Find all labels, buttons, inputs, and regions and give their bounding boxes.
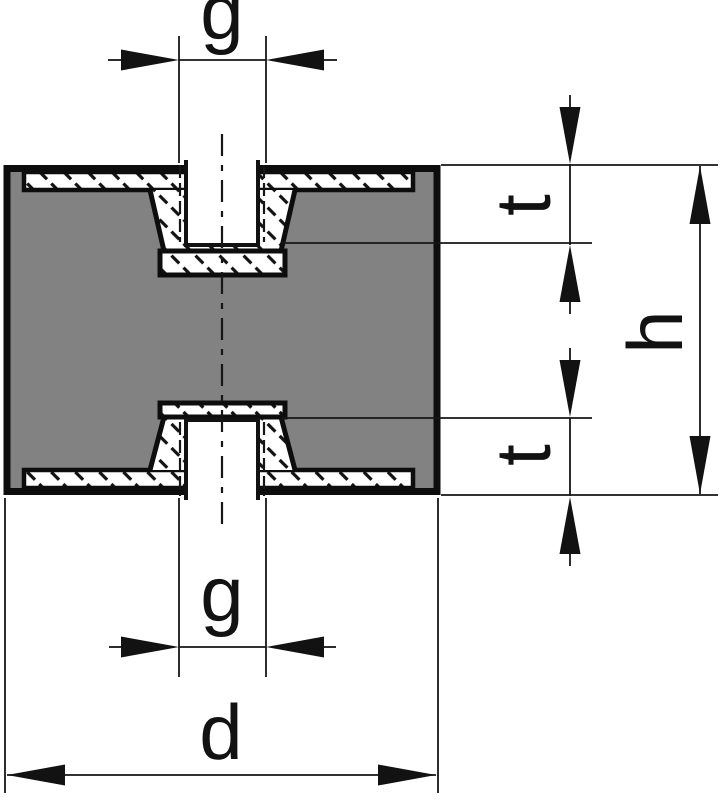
arrowhead <box>121 637 179 658</box>
dim-label-g-top: g <box>200 0 243 56</box>
technical-drawing-page: g t h t g d <box>0 0 722 800</box>
arrowhead <box>266 50 324 71</box>
dim-label-h: h <box>611 310 699 353</box>
dim-label-d: d <box>199 688 242 776</box>
buffer-section-drawing: g t h t g d <box>0 0 722 800</box>
arrowhead <box>690 166 711 224</box>
arrowhead <box>690 436 711 494</box>
dim-label-t-bottom: t <box>479 444 567 466</box>
arrowhead <box>560 360 581 417</box>
arrowhead <box>121 50 179 71</box>
dim-label-t-top: t <box>479 194 567 216</box>
arrowhead <box>266 637 324 658</box>
dim-label-g-bottom: g <box>200 550 243 638</box>
arrowhead <box>560 245 581 302</box>
arrowhead <box>7 765 65 786</box>
arrowhead <box>378 765 436 786</box>
arrowhead <box>560 107 581 164</box>
arrowhead <box>560 497 581 554</box>
